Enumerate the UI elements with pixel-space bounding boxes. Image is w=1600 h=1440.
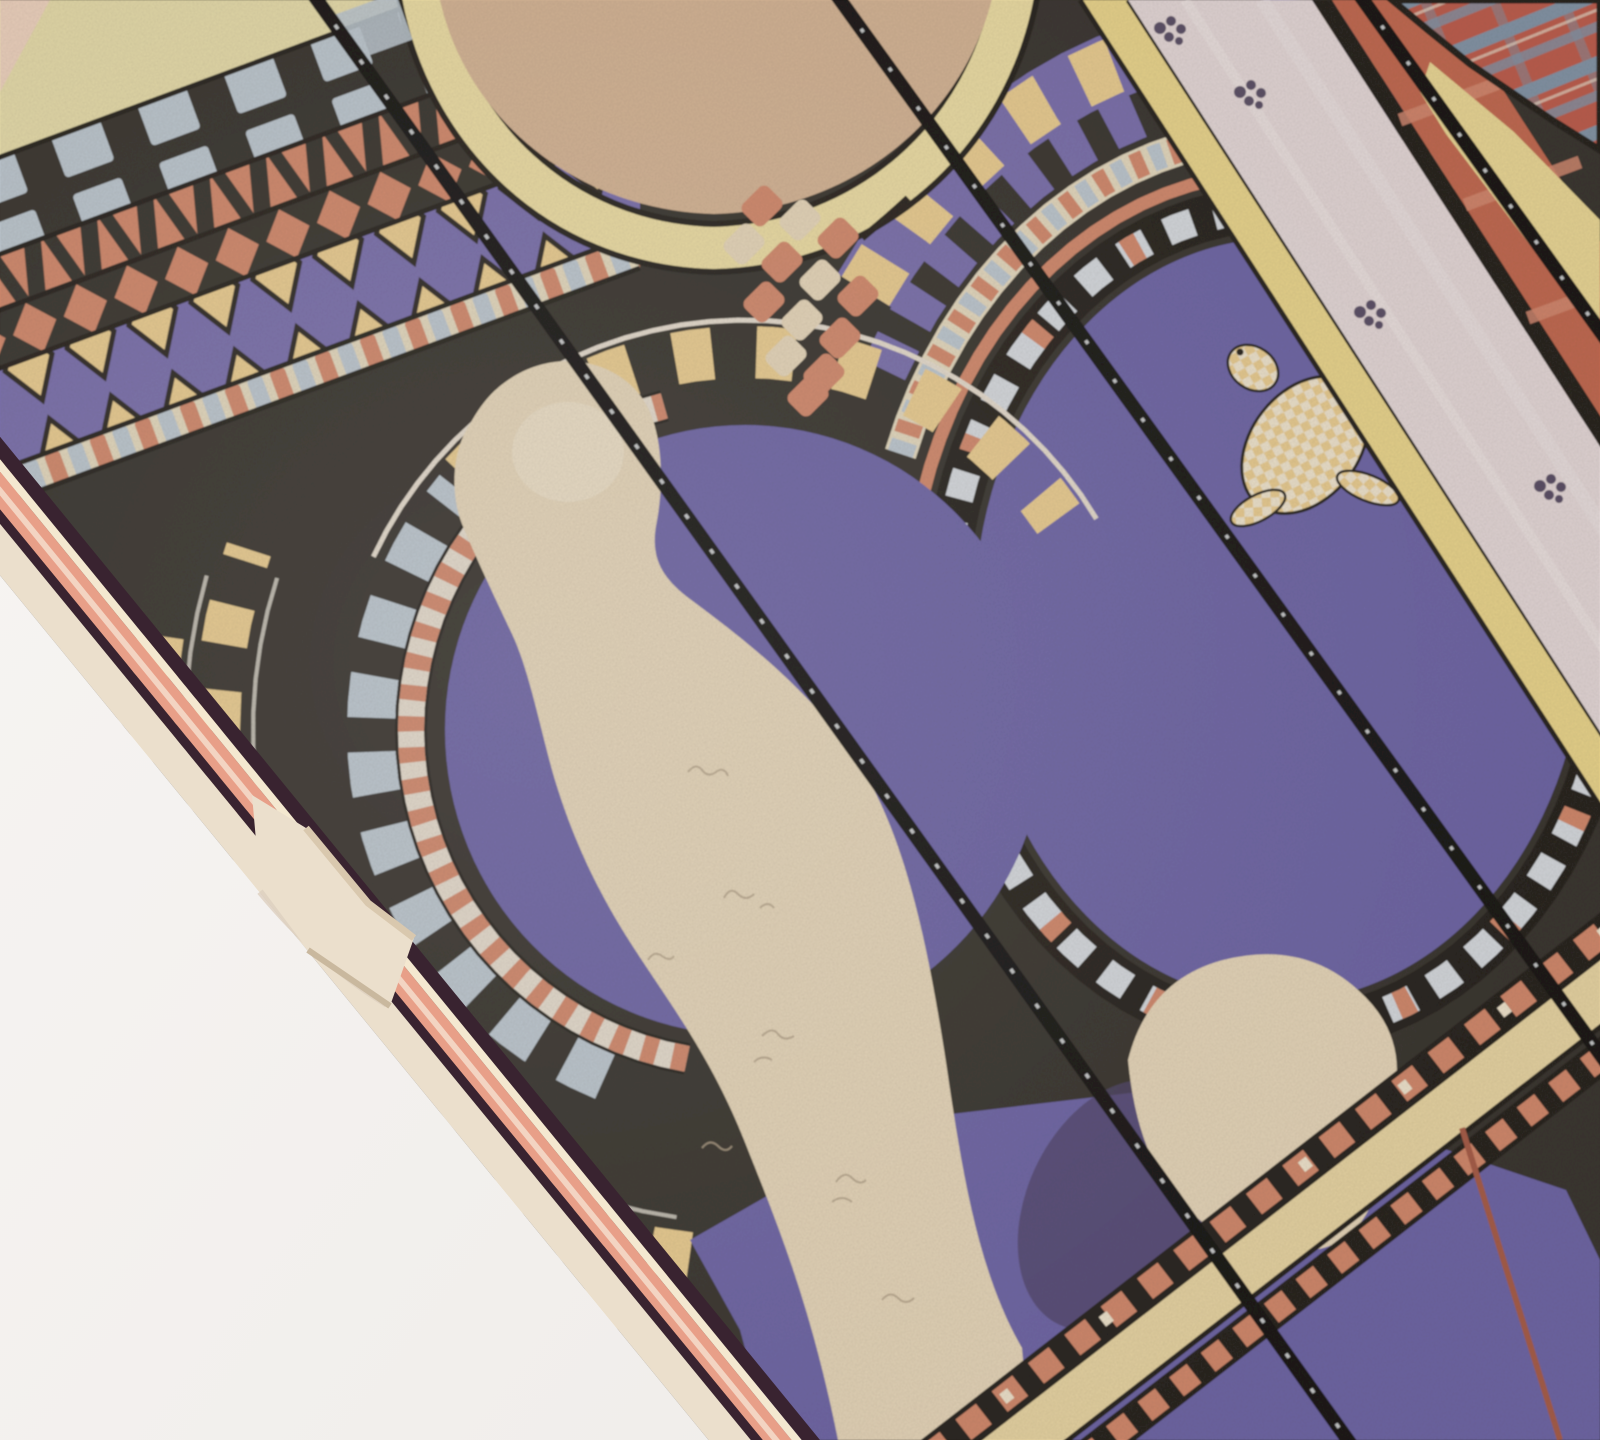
photo-stage: Close-up photograph of a vintage Art Nou… (0, 0, 1600, 1440)
poster-photo-svg (0, 0, 1600, 1440)
